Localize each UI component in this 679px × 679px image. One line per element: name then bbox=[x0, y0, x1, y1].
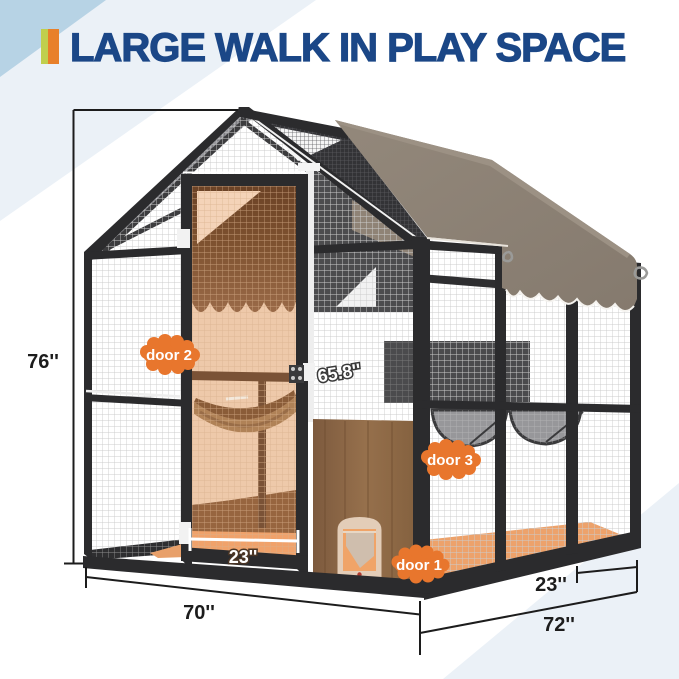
svg-text:LARGE WALK IN PLAY SPACE: LARGE WALK IN PLAY SPACE bbox=[70, 26, 626, 70]
svg-text:76'': 76'' bbox=[27, 351, 59, 373]
svg-text:door 3: door 3 bbox=[427, 452, 473, 469]
svg-text:door 2: door 2 bbox=[146, 347, 192, 364]
svg-text:door 1: door 1 bbox=[396, 557, 442, 574]
svg-text:70'': 70'' bbox=[183, 602, 215, 624]
svg-text:23'': 23'' bbox=[535, 574, 567, 596]
svg-text:23'': 23'' bbox=[229, 547, 258, 567]
svg-text:72'': 72'' bbox=[543, 614, 575, 636]
